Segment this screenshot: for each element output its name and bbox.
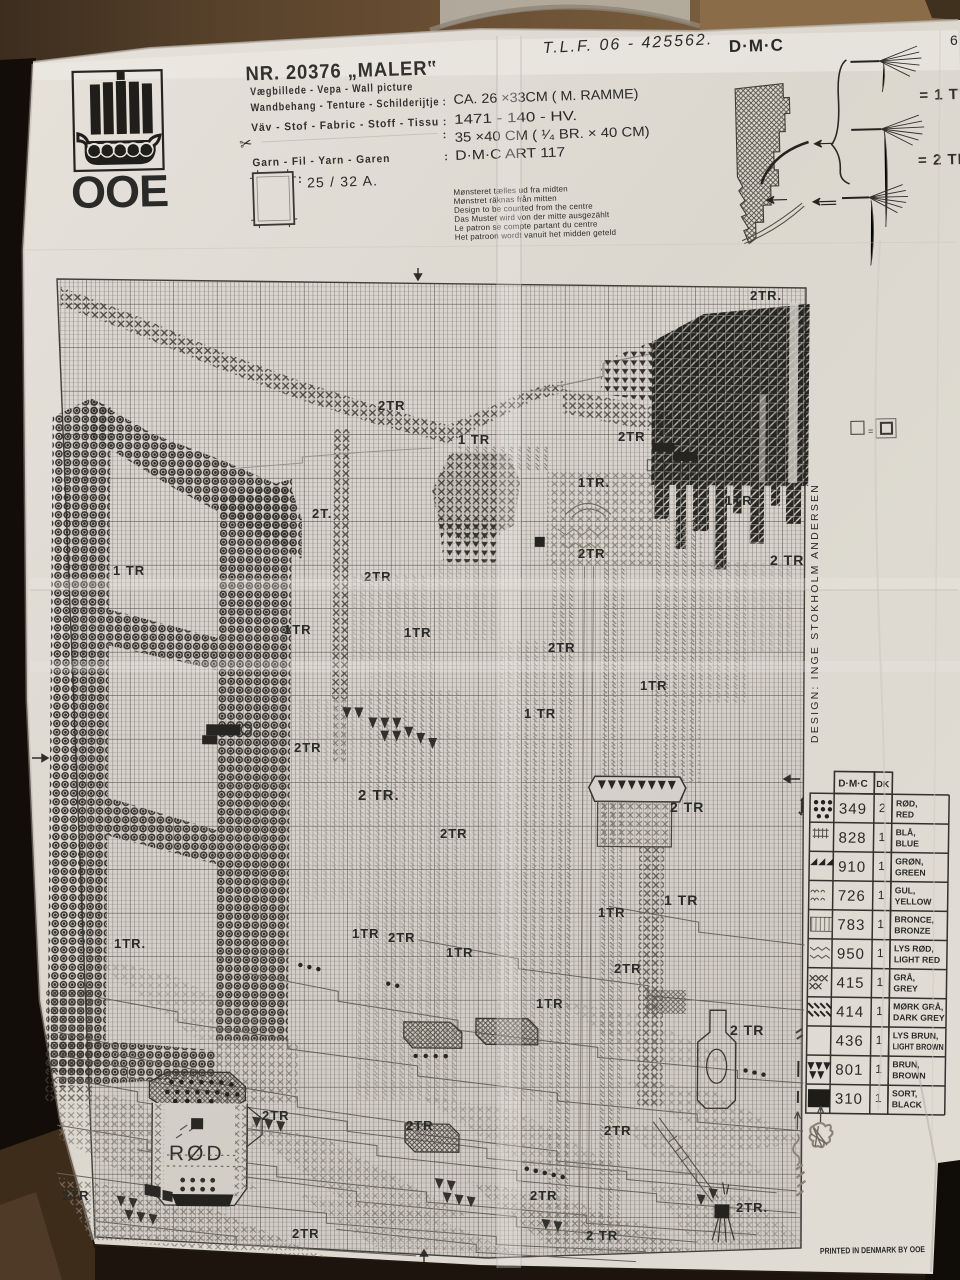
svg-text:LYS RØD,: LYS RØD, xyxy=(894,943,934,954)
svg-text:1: 1 xyxy=(877,946,884,960)
svg-text:310: 310 xyxy=(835,1090,863,1107)
svg-text:2TR: 2TR xyxy=(294,740,322,755)
svg-text:SORT,: SORT, xyxy=(892,1088,917,1098)
svg-text:MØRK GRÅ,: MØRK GRÅ, xyxy=(893,1001,943,1012)
svg-text:GUL,: GUL, xyxy=(895,885,916,895)
svg-text:BRONCE,: BRONCE, xyxy=(894,914,934,925)
svg-text:1: 1 xyxy=(878,888,885,902)
svg-text:1TR: 1TR xyxy=(536,996,564,1011)
svg-text:6: 6 xyxy=(950,32,958,48)
svg-text:1TR: 1TR xyxy=(598,905,626,920)
svg-text:1TR: 1TR xyxy=(640,678,668,693)
svg-text:D·M·C: D·M·C xyxy=(838,778,868,789)
svg-text::: : xyxy=(298,172,303,186)
svg-text:PRINTED IN DENMARK BY OOE: PRINTED IN DENMARK BY OOE xyxy=(820,1244,925,1256)
svg-text:414: 414 xyxy=(836,1003,864,1020)
svg-text:GRØN,: GRØN, xyxy=(895,856,923,866)
svg-text:349: 349 xyxy=(839,800,867,817)
svg-text::: : xyxy=(442,129,447,141)
svg-text:2TR: 2TR xyxy=(406,1118,434,1133)
svg-text:783: 783 xyxy=(837,916,865,933)
svg-text:2 TR.: 2 TR. xyxy=(358,787,400,804)
svg-text:DARK GREY: DARK GREY xyxy=(893,1012,945,1023)
svg-text:25 / 32 A.: 25 / 32 A. xyxy=(307,172,379,190)
svg-text:2TR: 2TR xyxy=(618,429,646,444)
svg-text:2 TR: 2 TR xyxy=(770,552,804,568)
svg-text:2TR.: 2TR. xyxy=(736,1200,768,1215)
svg-text:BRONZE: BRONZE xyxy=(894,925,931,936)
svg-text:1TR: 1TR xyxy=(284,622,312,637)
svg-text:OOE: OOE xyxy=(71,165,169,218)
svg-text:1TR: 1TR xyxy=(446,945,474,960)
svg-text:436: 436 xyxy=(836,1032,864,1049)
svg-text:GREEN: GREEN xyxy=(895,867,926,877)
svg-text:801: 801 xyxy=(835,1061,863,1078)
svg-text:RØD,: RØD, xyxy=(896,798,918,808)
svg-text:BROWN: BROWN xyxy=(892,1070,926,1080)
svg-text:2TR: 2TR xyxy=(614,961,642,976)
svg-text:2 TR: 2 TR xyxy=(730,1022,764,1038)
svg-text:BLÅ,: BLÅ, xyxy=(896,827,916,837)
svg-text:1 TR: 1 TR xyxy=(664,892,698,908)
svg-text:D·M·C: D·M·C xyxy=(729,36,785,56)
svg-text:1TR: 1TR xyxy=(352,926,380,941)
svg-text:GREY: GREY xyxy=(893,983,918,993)
svg-text:LYS BRUN,: LYS BRUN, xyxy=(893,1030,939,1041)
svg-text:2TR: 2TR xyxy=(262,1108,290,1123)
svg-text:2TR: 2TR xyxy=(62,1188,90,1203)
svg-text:LIGHT BROWN: LIGHT BROWN xyxy=(893,1041,944,1052)
svg-text:2TR.: 2TR. xyxy=(750,288,782,303)
svg-text:828: 828 xyxy=(838,829,866,846)
svg-text:1TR: 1TR xyxy=(404,625,432,640)
svg-text:DESIGN: INGE STOKHOLM ANDERSEN: DESIGN: INGE STOKHOLM ANDERSEN xyxy=(809,483,821,743)
svg-text:2T.: 2T. xyxy=(312,506,332,521)
svg-text:726: 726 xyxy=(838,887,866,904)
svg-text:RED: RED xyxy=(896,809,914,819)
svg-text:2TR: 2TR xyxy=(440,826,468,841)
svg-text:BLUE: BLUE xyxy=(895,838,919,848)
svg-text:2TR: 2TR xyxy=(378,398,406,413)
svg-text:950: 950 xyxy=(837,945,865,962)
svg-text:910: 910 xyxy=(838,858,866,875)
svg-text:DK: DK xyxy=(876,779,890,789)
svg-text:415: 415 xyxy=(836,974,864,991)
svg-text:1 TR: 1 TR xyxy=(458,432,490,447)
svg-text:1: 1 xyxy=(877,917,884,931)
svg-text:BLACK: BLACK xyxy=(892,1099,923,1109)
svg-text:1TR.: 1TR. xyxy=(578,475,610,490)
svg-text:1 TR: 1 TR xyxy=(524,706,556,721)
svg-text:2TR: 2TR xyxy=(578,546,606,561)
svg-text:1TR.: 1TR. xyxy=(114,936,146,951)
svg-text:2TR: 2TR xyxy=(604,1123,632,1138)
svg-text:2 TR: 2 TR xyxy=(586,1228,618,1243)
svg-text:YELLOW: YELLOW xyxy=(895,896,933,907)
svg-text:2 TR: 2 TR xyxy=(670,799,704,815)
svg-text:2TR: 2TR xyxy=(530,1188,558,1203)
svg-text:2TR: 2TR xyxy=(548,640,576,655)
svg-text:2TR: 2TR xyxy=(292,1226,320,1241)
svg-text:1TR: 1TR xyxy=(725,493,753,508)
svg-text::: : xyxy=(444,151,449,163)
svg-text:1 TR: 1 TR xyxy=(113,563,145,578)
svg-text:2TR: 2TR xyxy=(388,930,416,945)
svg-text:GRÅ,: GRÅ, xyxy=(894,972,916,982)
svg-text:=: = xyxy=(868,426,873,436)
